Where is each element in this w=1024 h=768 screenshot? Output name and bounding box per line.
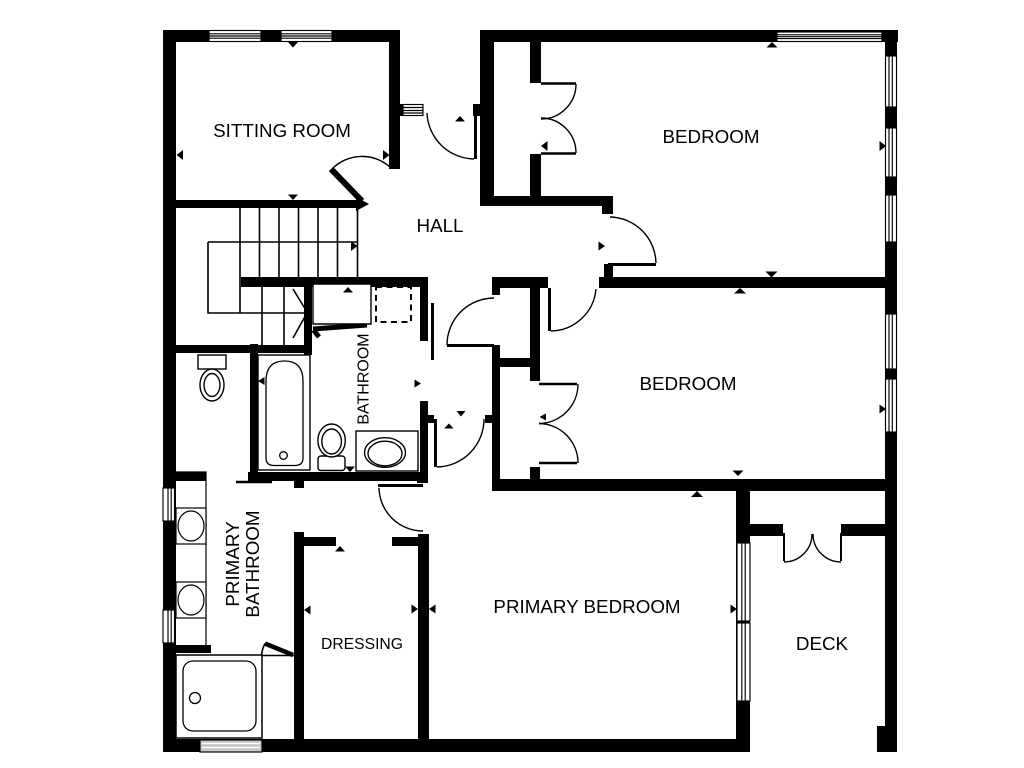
svg-text:SITTING ROOM: SITTING ROOM [213,120,351,141]
svg-text:HALL: HALL [417,215,464,236]
svg-text:DECK: DECK [796,633,849,654]
svg-text:BEDROOM: BEDROOM [662,126,759,147]
svg-text:PRIMARY BEDROOM: PRIMARY BEDROOM [493,596,680,617]
svg-text:BATHROOM: BATHROOM [356,333,373,424]
svg-text:PRIMARY: PRIMARY [222,521,243,607]
svg-text:BEDROOM: BEDROOM [639,373,736,394]
svg-text:DRESSING: DRESSING [321,636,403,653]
svg-text:BATHROOM: BATHROOM [242,510,263,617]
